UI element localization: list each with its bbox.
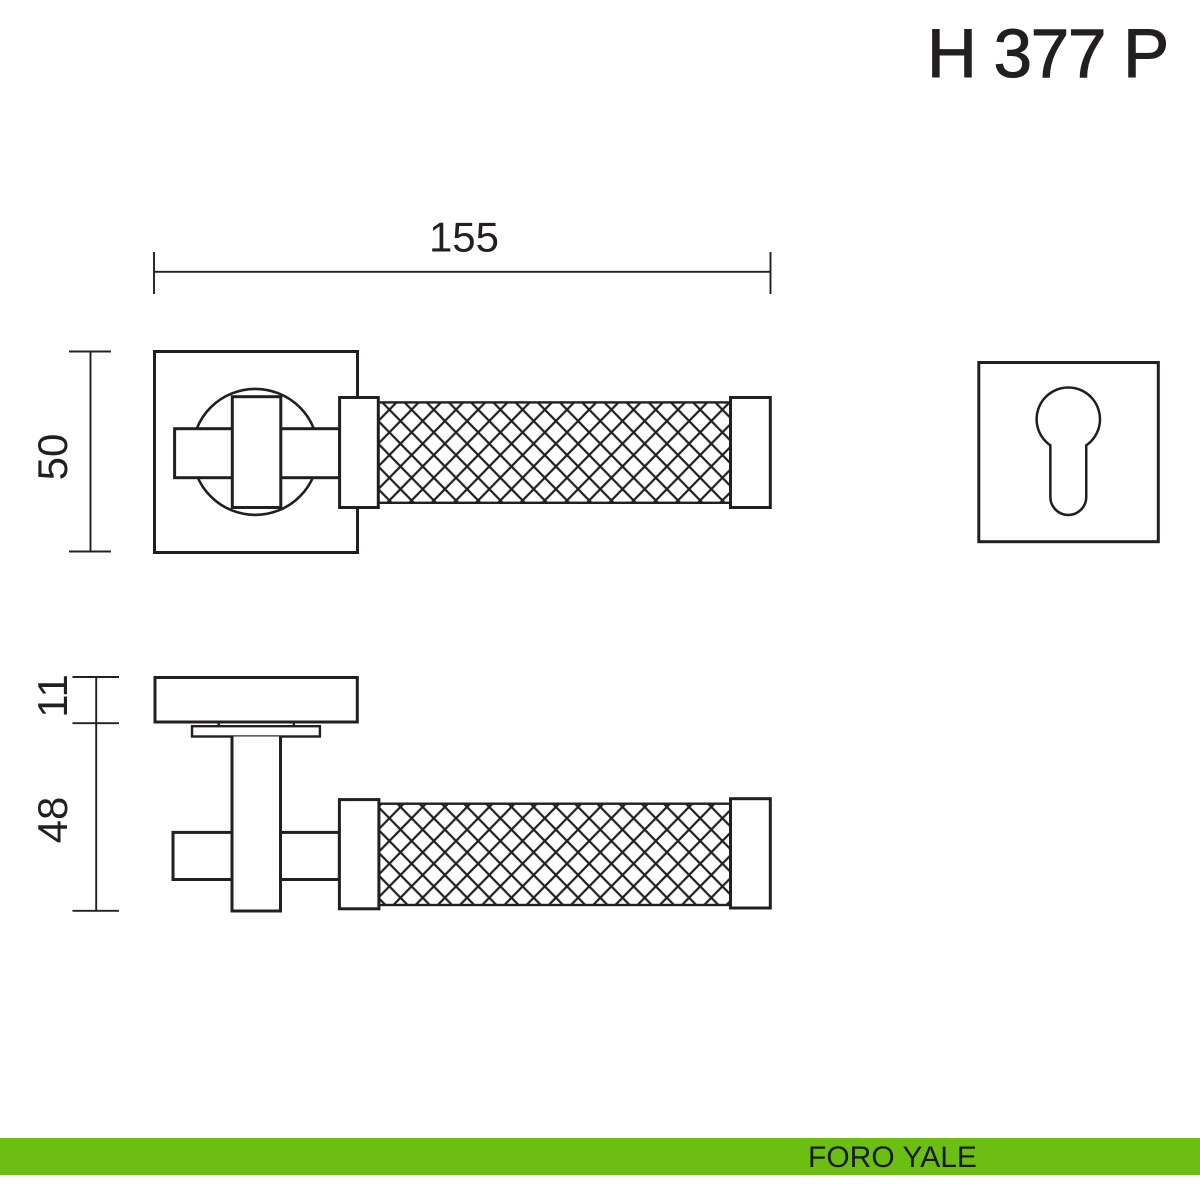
svg-text:11: 11 [29, 674, 76, 718]
svg-text:50: 50 [29, 434, 76, 481]
svg-text:48: 48 [29, 797, 76, 844]
svg-text:FORO YALE: FORO YALE [808, 1141, 977, 1174]
svg-text:H 377 P: H 377 P [927, 15, 1168, 92]
svg-text:155: 155 [429, 214, 499, 261]
